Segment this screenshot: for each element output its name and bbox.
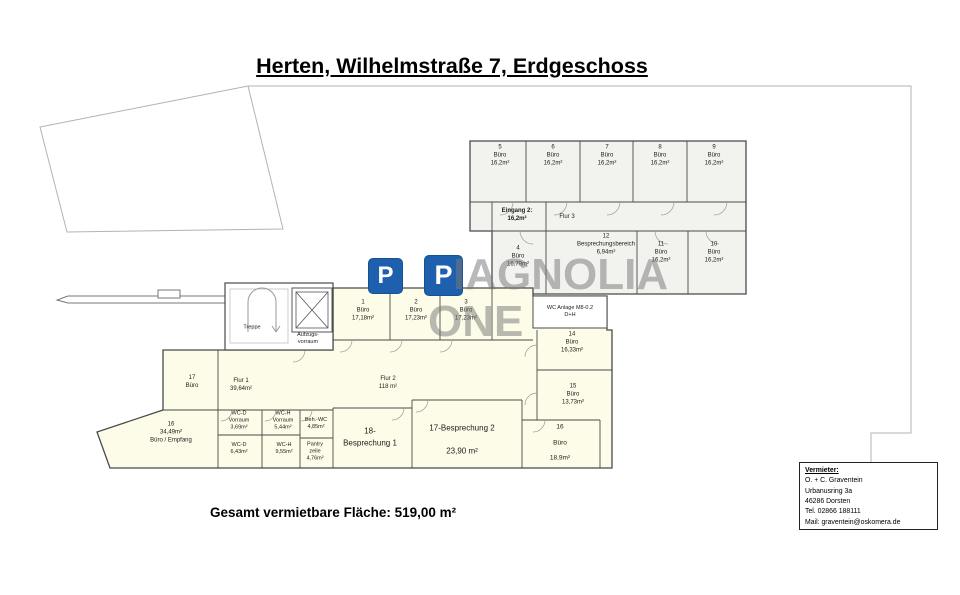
room-label-11: 11 Büro 16,2m² — [652, 241, 671, 264]
room-label-9: 9 Büro 16,2m² — [705, 144, 724, 167]
floorplan-page: Herten, Wilhelmstraße 7, Erdgeschoss 5 B… — [0, 0, 960, 595]
room-label-16-empfang: 16 34,49m² Büro / Empfang — [150, 421, 192, 444]
retaining-wall — [57, 290, 225, 303]
landlord-name: O. + C. Graventein — [805, 476, 932, 486]
room-label-wcd-vorraum: WC-D Vorraum 3,69m² — [229, 410, 250, 431]
room-label-flur3: Flur 3 — [559, 214, 574, 222]
room-label-wch-vorraum: WC-H Vorraum 5,44m² — [273, 410, 294, 431]
room-label-pantry: Pantry zeile 4,76m² — [306, 441, 323, 462]
room-label-18-besprechung1: 18- Besprechung 1 — [343, 425, 397, 448]
wc-anlage-label: WC Anlage M8-0.2 D+H — [547, 305, 593, 319]
room-label-4: 4 Büro 16,79m² — [507, 245, 529, 268]
page-title: Herten, Wilhelmstraße 7, Erdgeschoss — [0, 54, 904, 79]
room-label-wch: WC-H 9,55m² — [275, 442, 292, 456]
room-label-8: 8 Büro 16,2m² — [651, 144, 670, 167]
room-label-7: 7 Büro 16,2m² — [598, 144, 617, 167]
landlord-street: Urbanusring 3a — [805, 487, 932, 497]
elevator-icon — [292, 288, 332, 332]
room-label-3: 3 Büro 17,23m² — [455, 299, 477, 322]
room-label-1: 1 Büro 17,18m² — [352, 299, 374, 322]
total-area-text: Gesamt vermietbare Fläche: 519,00 m² — [210, 505, 456, 520]
landlord-city: 46286 Dorsten — [805, 497, 932, 507]
room-label-12: 12 Besprechungsbereich 6,94m² — [577, 233, 635, 256]
room-label-eingang2: Eingang 2: 16,2m² — [502, 208, 533, 224]
room-label-14: 14 Büro 16,33m² — [561, 331, 583, 354]
room-label-5: 5 Büro 16,2m² — [491, 144, 510, 167]
room-label-aufzugsvorraum: Aufzugs- vorraum — [297, 332, 319, 346]
room-label-6: 6 Büro 16,2m² — [544, 144, 563, 167]
landlord-heading: Vermieter: — [805, 466, 932, 476]
room-label-16-buero: 16 Büro 18,9m² — [550, 420, 570, 467]
room-label-flur2: Flur 2 118 m² — [379, 376, 397, 392]
room-label-treppe: Treppe — [243, 324, 260, 331]
room-label-17: 17 Büro — [186, 375, 199, 391]
room-label-10: 10 Büro 16,2m² — [705, 241, 724, 264]
room-label-flur1: Flur 1 39,64m² — [230, 378, 252, 394]
landlord-email: Mail: graventein@oskomera.de — [805, 518, 932, 528]
room-label-wcd: WC-D 6,43m² — [230, 442, 247, 456]
room-label-behwc: Beh.-WC 4,85m² — [305, 417, 327, 431]
room-label-15: 15 Büro 13,73m² — [562, 383, 584, 406]
landlord-box: Vermieter: O. + C. Graventein Urbanusrin… — [799, 462, 938, 530]
room-label-17-besprechung2: 17-Besprechung 2 23,90 m² — [429, 423, 494, 458]
room-label-2: 2 Büro 17,23m² — [405, 299, 427, 322]
landlord-phone: Tel. 02866 188111 — [805, 507, 932, 517]
